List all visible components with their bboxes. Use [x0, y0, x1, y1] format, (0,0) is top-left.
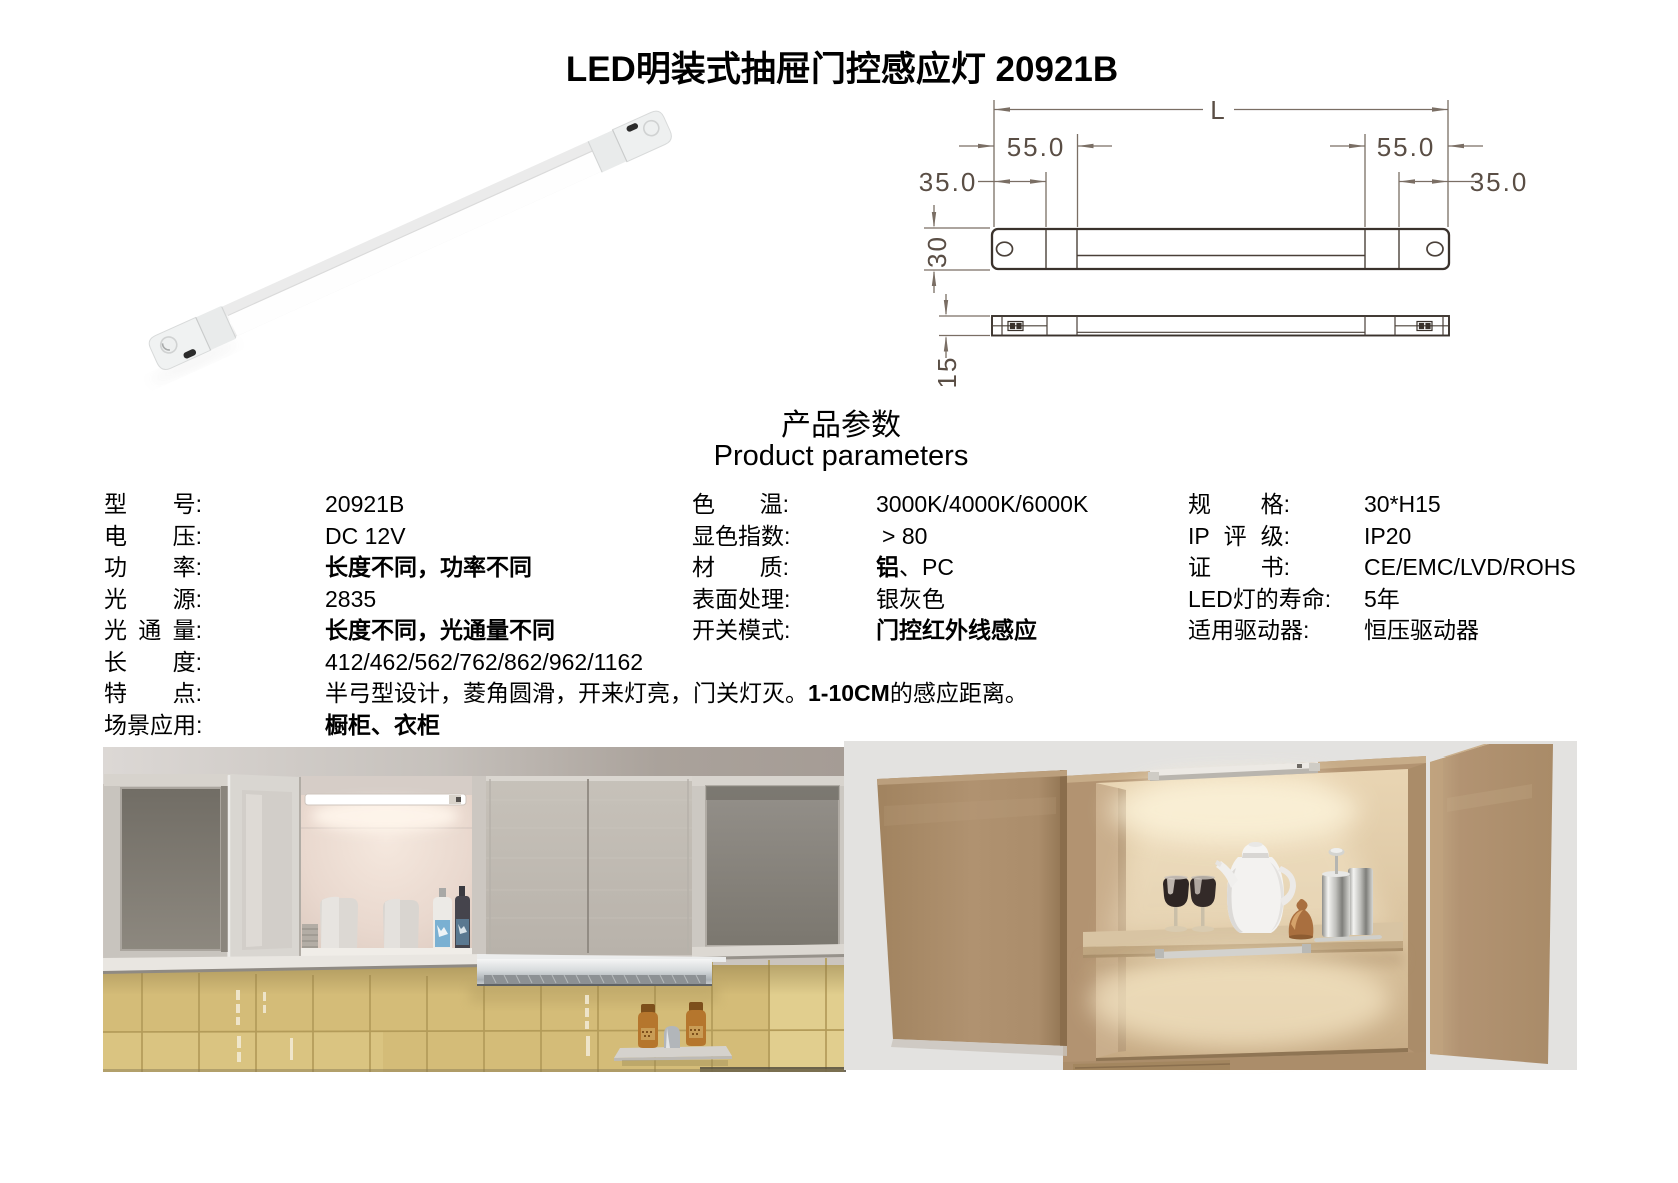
- svg-text:15: 15: [932, 356, 962, 389]
- svg-text:55.0: 55.0: [1377, 132, 1436, 162]
- svg-text:L: L: [1210, 95, 1226, 125]
- svg-text:35.0: 35.0: [1470, 167, 1529, 197]
- svg-text:30: 30: [922, 235, 952, 268]
- svg-text:35.0: 35.0: [919, 167, 978, 197]
- svg-text:55.0: 55.0: [1007, 132, 1066, 162]
